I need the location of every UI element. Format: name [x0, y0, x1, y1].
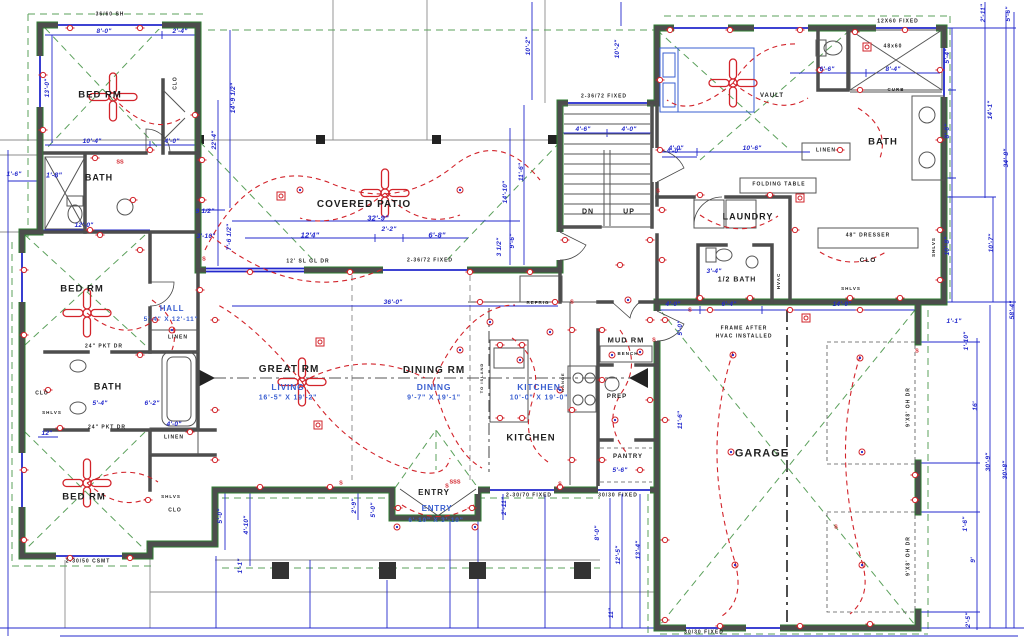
outlet-symbol	[661, 617, 670, 622]
outlet-symbol	[658, 257, 667, 262]
outlet-symbol	[658, 207, 667, 212]
outlet-symbol	[551, 299, 560, 304]
outlet-symbol	[661, 417, 670, 422]
can-light-symbol	[859, 449, 865, 455]
outlet-symbol	[646, 237, 655, 242]
outlet-symbol	[836, 147, 845, 152]
outlet-symbol	[568, 327, 577, 332]
fixture-box-symbol	[316, 338, 324, 346]
outlet-symbol	[91, 155, 100, 160]
outlet-symbol	[476, 299, 485, 304]
outlet-symbol	[136, 247, 145, 252]
outlet-symbol	[568, 457, 577, 462]
interior-walls	[22, 28, 848, 490]
outlet-symbol	[496, 415, 505, 420]
electrical-symbols-layer	[20, 25, 945, 628]
can-light-symbol	[857, 355, 863, 361]
outlet-symbol	[129, 197, 138, 202]
outlet-symbol	[518, 415, 527, 420]
outlet-symbol	[661, 537, 670, 542]
outlet-symbol	[696, 192, 705, 197]
circuit-wiring-arcs	[87, 44, 886, 616]
outlet-symbol	[856, 307, 865, 312]
outlet-symbol	[791, 227, 800, 232]
outlet-symbol	[144, 497, 153, 502]
outlet-symbol	[211, 457, 220, 462]
exterior-walls	[22, 25, 944, 628]
fixture-box-symbol	[802, 314, 810, 322]
floor-plan-drawing	[0, 0, 1024, 639]
fixture-box-symbol	[796, 194, 804, 202]
outlet-symbol	[151, 317, 160, 322]
can-light-symbol	[297, 187, 303, 193]
can-light-symbol	[394, 524, 400, 530]
outlet-symbol	[44, 387, 53, 392]
can-light-symbol	[612, 417, 618, 423]
fixture-box-symbol	[314, 421, 322, 429]
can-light-symbol	[609, 352, 615, 358]
outlet-symbol	[636, 467, 645, 472]
windows	[18, 21, 948, 632]
floor-plan-sheet: BED RMCLOBATHBED RMBATHBED RMGREAT RMDIN…	[0, 0, 1024, 639]
fixture-box-symbol	[863, 43, 871, 51]
outlet-symbol	[616, 262, 625, 267]
can-light-symbol	[728, 449, 734, 455]
can-light-symbol	[517, 357, 523, 363]
can-light-symbol	[457, 347, 463, 353]
outlet-symbol	[706, 307, 715, 312]
can-light-symbol	[547, 329, 553, 335]
can-light-symbol	[625, 297, 631, 303]
outlet-symbol	[646, 397, 655, 402]
outlet-symbol	[211, 317, 220, 322]
can-light-symbol	[637, 349, 643, 355]
outlet-symbol	[518, 342, 527, 347]
can-light-symbol	[457, 187, 463, 193]
can-light-symbol	[557, 387, 563, 393]
can-light-symbol	[487, 319, 493, 325]
fixture-box-symbol	[277, 192, 285, 200]
can-light-symbol	[472, 524, 478, 530]
outlet-symbol	[496, 342, 505, 347]
outlet-symbol	[211, 407, 220, 412]
